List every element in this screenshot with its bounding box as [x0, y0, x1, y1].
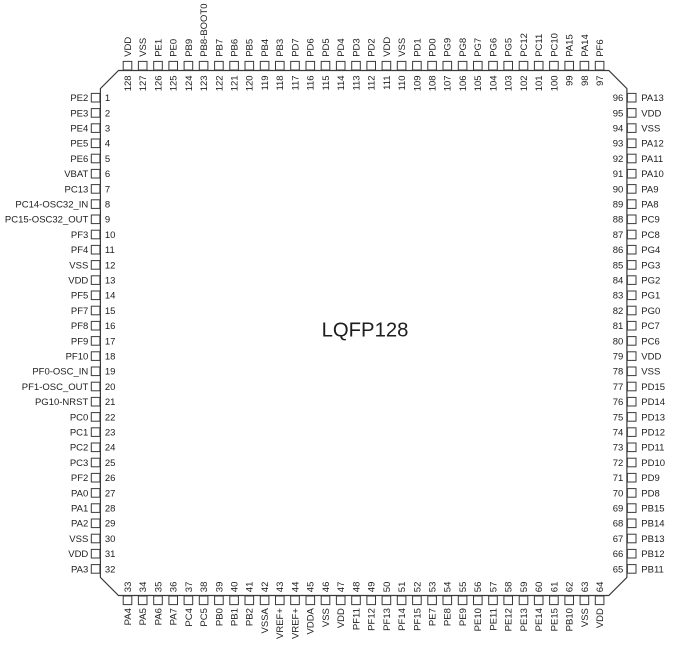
svg-text:76: 76: [613, 397, 624, 408]
svg-text:PC9: PC9: [641, 215, 659, 226]
svg-text:PE1: PE1: [153, 39, 164, 57]
svg-text:VDD: VDD: [336, 608, 347, 628]
svg-text:PE4: PE4: [70, 124, 88, 135]
svg-text:PF15: PF15: [412, 608, 423, 631]
svg-text:75: 75: [613, 412, 624, 423]
svg-text:102: 102: [519, 75, 530, 91]
svg-text:12: 12: [105, 260, 116, 271]
svg-text:11: 11: [105, 245, 115, 256]
svg-text:39: 39: [214, 582, 225, 593]
svg-text:PA14: PA14: [580, 34, 591, 57]
svg-text:112: 112: [367, 75, 378, 90]
svg-text:VDD: VDD: [68, 549, 88, 560]
svg-text:PC2: PC2: [70, 443, 88, 454]
svg-text:79: 79: [613, 352, 624, 363]
svg-text:111: 111: [382, 75, 393, 89]
svg-text:PE9: PE9: [458, 608, 469, 626]
svg-text:60: 60: [534, 582, 545, 593]
svg-text:118: 118: [275, 75, 286, 90]
svg-text:56: 56: [473, 582, 484, 593]
svg-text:123: 123: [199, 75, 210, 91]
svg-text:78: 78: [613, 367, 624, 378]
svg-text:PG1: PG1: [641, 291, 660, 302]
svg-text:24: 24: [105, 443, 116, 454]
svg-text:PB8-BOOT0: PB8-BOOT0: [199, 3, 210, 56]
svg-text:VDD: VDD: [382, 37, 393, 57]
svg-text:14: 14: [105, 291, 116, 302]
svg-text:PA10: PA10: [641, 169, 664, 180]
svg-text:57: 57: [488, 582, 499, 593]
svg-text:45: 45: [306, 582, 317, 593]
svg-text:PD7: PD7: [290, 38, 301, 56]
svg-text:VDD: VDD: [641, 352, 661, 363]
svg-text:121: 121: [230, 75, 241, 91]
svg-text:PA1: PA1: [71, 504, 88, 515]
svg-text:PD8: PD8: [641, 488, 659, 499]
svg-text:PD3: PD3: [351, 38, 362, 56]
svg-text:PF14: PF14: [397, 608, 408, 631]
svg-text:VDDA: VDDA: [306, 607, 317, 634]
svg-text:84: 84: [613, 276, 624, 287]
svg-text:VSS: VSS: [69, 260, 88, 271]
svg-text:VSS: VSS: [641, 367, 660, 378]
svg-text:89: 89: [613, 200, 624, 211]
svg-text:PB15: PB15: [641, 504, 664, 515]
svg-text:32: 32: [105, 564, 116, 575]
svg-text:PC14-OSC32_IN: PC14-OSC32_IN: [15, 200, 88, 211]
svg-text:103: 103: [504, 75, 515, 91]
svg-text:21: 21: [105, 397, 116, 408]
svg-text:127: 127: [138, 75, 149, 91]
svg-text:31: 31: [105, 549, 116, 560]
svg-text:PD5: PD5: [321, 38, 332, 56]
svg-text:80: 80: [613, 336, 624, 347]
svg-text:65: 65: [613, 564, 624, 575]
svg-text:PE12: PE12: [504, 608, 515, 631]
svg-text:34: 34: [138, 582, 149, 593]
svg-text:90: 90: [613, 184, 624, 195]
svg-text:126: 126: [153, 75, 164, 91]
svg-text:PA13: PA13: [641, 93, 664, 104]
svg-text:PB6: PB6: [230, 39, 241, 57]
svg-text:98: 98: [580, 75, 591, 86]
svg-text:PE3: PE3: [70, 108, 88, 119]
svg-text:67: 67: [613, 534, 624, 545]
svg-text:74: 74: [613, 428, 624, 439]
svg-text:PD12: PD12: [641, 428, 665, 439]
svg-text:PE13: PE13: [519, 608, 530, 631]
svg-text:53: 53: [428, 582, 439, 593]
svg-text:15: 15: [105, 306, 116, 317]
svg-text:PG9: PG9: [443, 38, 454, 57]
svg-text:VDD: VDD: [641, 108, 661, 119]
svg-text:114: 114: [336, 75, 347, 90]
svg-text:PD6: PD6: [306, 38, 317, 56]
svg-text:PC5: PC5: [199, 608, 210, 626]
svg-text:PA7: PA7: [169, 608, 180, 625]
svg-text:100: 100: [549, 75, 560, 91]
svg-text:69: 69: [613, 504, 624, 515]
svg-text:VREF+: VREF+: [275, 608, 286, 639]
svg-text:1: 1: [105, 93, 110, 104]
svg-text:PG3: PG3: [641, 260, 660, 271]
svg-text:PF2: PF2: [71, 473, 88, 484]
svg-text:23: 23: [105, 428, 116, 439]
svg-text:10: 10: [105, 230, 116, 241]
svg-text:PE7: PE7: [428, 608, 439, 626]
svg-text:5: 5: [105, 154, 110, 165]
svg-text:63: 63: [580, 582, 591, 593]
svg-text:52: 52: [412, 582, 423, 593]
svg-text:58: 58: [504, 582, 515, 593]
svg-text:PE15: PE15: [549, 608, 560, 631]
svg-text:PB7: PB7: [214, 39, 225, 57]
svg-text:PC0: PC0: [70, 412, 88, 423]
svg-text:3: 3: [105, 124, 110, 135]
svg-text:44: 44: [290, 582, 301, 593]
svg-text:101: 101: [534, 75, 545, 91]
svg-text:49: 49: [367, 582, 378, 593]
svg-text:28: 28: [105, 504, 116, 515]
svg-text:17: 17: [105, 336, 116, 347]
svg-text:PF12: PF12: [367, 608, 378, 631]
svg-text:PC8: PC8: [641, 230, 659, 241]
svg-text:73: 73: [613, 443, 624, 454]
svg-text:PB3: PB3: [275, 39, 286, 57]
svg-text:PF13: PF13: [382, 608, 393, 631]
svg-text:PA9: PA9: [641, 184, 658, 195]
svg-text:115: 115: [321, 75, 332, 90]
svg-text:119: 119: [260, 75, 271, 90]
svg-text:PC13: PC13: [65, 184, 89, 195]
svg-text:PA11: PA11: [641, 154, 663, 165]
svg-text:19: 19: [105, 367, 116, 378]
svg-text:113: 113: [351, 75, 362, 90]
svg-text:PE10: PE10: [473, 608, 484, 631]
svg-text:PF10: PF10: [66, 352, 89, 363]
svg-text:7: 7: [105, 184, 110, 195]
svg-text:105: 105: [473, 75, 484, 91]
svg-text:120: 120: [245, 75, 256, 91]
svg-text:48: 48: [351, 582, 362, 593]
svg-text:PD14: PD14: [641, 397, 665, 408]
svg-text:PE14: PE14: [534, 608, 545, 631]
svg-text:PA5: PA5: [138, 608, 149, 625]
svg-text:55: 55: [458, 582, 469, 593]
svg-text:54: 54: [443, 582, 454, 593]
svg-text:PB5: PB5: [245, 39, 256, 57]
svg-text:PD0: PD0: [428, 38, 439, 56]
svg-text:37: 37: [184, 582, 195, 593]
svg-text:106: 106: [458, 75, 469, 91]
svg-text:PG10-NRST: PG10-NRST: [35, 397, 89, 408]
svg-text:26: 26: [105, 473, 116, 484]
svg-text:PC7: PC7: [641, 321, 659, 332]
svg-text:PG7: PG7: [473, 38, 484, 57]
svg-text:88: 88: [613, 215, 624, 226]
svg-text:PF8: PF8: [71, 321, 88, 332]
svg-text:PF9: PF9: [71, 336, 88, 347]
svg-text:36: 36: [169, 582, 180, 593]
svg-text:PA8: PA8: [641, 200, 658, 211]
svg-text:124: 124: [184, 75, 195, 91]
svg-text:68: 68: [613, 519, 624, 530]
svg-text:PD11: PD11: [641, 443, 664, 454]
svg-text:PG2: PG2: [641, 276, 660, 287]
svg-text:PF0-OSC_IN: PF0-OSC_IN: [32, 367, 88, 378]
svg-text:51: 51: [397, 582, 408, 593]
svg-text:PB13: PB13: [641, 534, 664, 545]
svg-text:43: 43: [275, 582, 286, 593]
svg-text:PA2: PA2: [71, 519, 88, 530]
svg-text:29: 29: [105, 519, 116, 530]
svg-text:VDD: VDD: [595, 608, 606, 628]
svg-text:PD15: PD15: [641, 382, 665, 393]
svg-text:PF7: PF7: [71, 306, 88, 317]
svg-text:38: 38: [199, 582, 210, 593]
svg-text:82: 82: [613, 306, 624, 317]
svg-text:PG8: PG8: [458, 38, 469, 57]
svg-text:PB12: PB12: [641, 549, 664, 560]
svg-text:99: 99: [565, 75, 576, 86]
svg-text:VSSA: VSSA: [260, 607, 271, 633]
svg-text:PC10: PC10: [549, 33, 560, 57]
svg-text:47: 47: [336, 582, 347, 593]
svg-text:PG4: PG4: [641, 245, 660, 256]
svg-text:92: 92: [613, 154, 624, 165]
svg-text:PB10: PB10: [565, 608, 576, 631]
svg-text:97: 97: [595, 75, 606, 86]
svg-text:117: 117: [290, 75, 301, 90]
svg-text:PC4: PC4: [184, 608, 195, 626]
svg-text:PA0: PA0: [71, 488, 88, 499]
svg-text:VSS: VSS: [138, 38, 149, 57]
svg-text:61: 61: [549, 582, 560, 593]
svg-text:35: 35: [153, 582, 164, 593]
svg-text:41: 41: [245, 582, 256, 593]
svg-text:85: 85: [613, 260, 624, 271]
svg-text:64: 64: [595, 582, 606, 593]
svg-text:91: 91: [613, 169, 624, 180]
svg-text:108: 108: [428, 75, 439, 91]
svg-text:PD2: PD2: [367, 38, 378, 56]
svg-text:27: 27: [105, 488, 116, 499]
svg-text:PD9: PD9: [641, 473, 659, 484]
svg-text:2: 2: [105, 108, 110, 119]
svg-text:107: 107: [443, 75, 454, 91]
svg-text:PG5: PG5: [504, 38, 515, 57]
svg-text:94: 94: [613, 124, 624, 135]
svg-text:40: 40: [230, 582, 241, 593]
svg-text:PA3: PA3: [71, 564, 88, 575]
svg-text:PC12: PC12: [519, 33, 530, 57]
svg-text:PF1-OSC_OUT: PF1-OSC_OUT: [22, 382, 89, 393]
svg-text:66: 66: [613, 549, 624, 560]
svg-text:PD1: PD1: [412, 38, 423, 56]
svg-text:PC15-OSC32_OUT: PC15-OSC32_OUT: [5, 215, 89, 226]
svg-text:86: 86: [613, 245, 624, 256]
svg-text:20: 20: [105, 382, 116, 393]
svg-text:PD13: PD13: [641, 412, 665, 423]
svg-text:PF6: PF6: [595, 39, 606, 56]
svg-text:PC6: PC6: [641, 336, 659, 347]
svg-text:70: 70: [613, 488, 624, 499]
svg-text:4: 4: [105, 139, 110, 150]
svg-text:128: 128: [123, 75, 134, 91]
svg-text:PB9: PB9: [184, 39, 195, 57]
svg-text:33: 33: [123, 582, 134, 593]
svg-text:109: 109: [412, 75, 423, 91]
svg-text:PD10: PD10: [641, 458, 665, 469]
svg-text:PB1: PB1: [230, 608, 241, 626]
svg-text:PB14: PB14: [641, 519, 664, 530]
svg-text:50: 50: [382, 582, 393, 593]
svg-text:83: 83: [613, 291, 624, 302]
svg-text:PG6: PG6: [488, 38, 499, 57]
svg-text:VREF+: VREF+: [290, 608, 301, 639]
svg-text:PA6: PA6: [153, 608, 164, 625]
svg-text:PA4: PA4: [123, 608, 134, 625]
svg-text:95: 95: [613, 108, 624, 119]
svg-text:PB11: PB11: [641, 564, 664, 575]
svg-text:116: 116: [306, 75, 317, 90]
svg-text:PC11: PC11: [534, 34, 545, 57]
svg-text:VBAT: VBAT: [64, 169, 88, 180]
svg-text:PE11: PE11: [488, 608, 499, 631]
svg-text:VSS: VSS: [397, 38, 408, 57]
svg-text:PF5: PF5: [71, 291, 88, 302]
svg-text:PC1: PC1: [70, 428, 88, 439]
svg-text:PG0: PG0: [641, 306, 660, 317]
svg-text:PC3: PC3: [70, 458, 88, 469]
svg-text:87: 87: [613, 230, 624, 241]
svg-text:46: 46: [321, 582, 332, 593]
svg-text:81: 81: [613, 321, 624, 332]
svg-text:PE0: PE0: [169, 39, 180, 57]
svg-text:110: 110: [397, 75, 408, 90]
svg-text:VSS: VSS: [641, 124, 660, 135]
svg-text:30: 30: [105, 534, 116, 545]
svg-text:PB0: PB0: [214, 608, 225, 626]
svg-text:VSS: VSS: [321, 608, 332, 627]
svg-text:PF4: PF4: [71, 245, 88, 256]
svg-text:96: 96: [613, 93, 624, 104]
svg-text:PA12: PA12: [641, 139, 664, 150]
svg-text:6: 6: [105, 169, 110, 180]
svg-text:16: 16: [105, 321, 116, 332]
svg-text:VSS: VSS: [580, 608, 591, 627]
svg-text:25: 25: [105, 458, 116, 469]
svg-text:PB4: PB4: [260, 39, 271, 57]
svg-text:PF11: PF11: [351, 608, 362, 630]
svg-text:8: 8: [105, 200, 110, 211]
svg-text:104: 104: [488, 75, 499, 91]
svg-text:PE8: PE8: [443, 608, 454, 626]
svg-text:9: 9: [105, 215, 110, 226]
svg-text:VSS: VSS: [69, 534, 88, 545]
svg-text:PA15: PA15: [565, 34, 576, 57]
svg-text:59: 59: [519, 582, 530, 593]
svg-text:LQFP128: LQFP128: [322, 320, 409, 342]
svg-text:72: 72: [613, 458, 624, 469]
svg-text:PE6: PE6: [70, 154, 88, 165]
svg-text:VDD: VDD: [123, 37, 134, 57]
svg-text:PE2: PE2: [70, 93, 88, 104]
svg-text:125: 125: [169, 75, 180, 91]
svg-text:93: 93: [613, 139, 624, 150]
svg-text:VDD: VDD: [68, 276, 88, 287]
svg-text:42: 42: [260, 582, 271, 593]
svg-text:PB2: PB2: [245, 608, 256, 626]
svg-text:22: 22: [105, 412, 116, 423]
svg-text:62: 62: [565, 582, 576, 593]
svg-text:PD4: PD4: [336, 38, 347, 56]
svg-text:PF3: PF3: [71, 230, 88, 241]
svg-text:77: 77: [613, 382, 624, 393]
svg-text:18: 18: [105, 352, 116, 363]
svg-text:122: 122: [214, 75, 225, 91]
svg-text:71: 71: [613, 473, 624, 484]
svg-text:PE5: PE5: [70, 139, 88, 150]
svg-text:13: 13: [105, 276, 116, 287]
